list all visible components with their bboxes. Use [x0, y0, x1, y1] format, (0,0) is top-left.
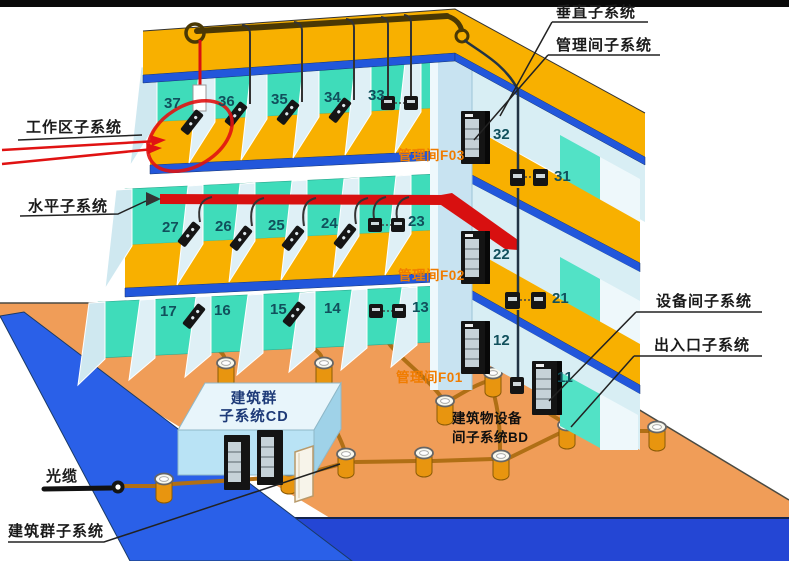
label-mgmt-f01: 管理间F01 [396, 369, 463, 385]
room-number: 37 [164, 95, 181, 112]
label-campus-subsystem: 建筑群子系统 [8, 522, 104, 540]
room-number: 26 [215, 218, 232, 235]
manhole [155, 474, 173, 504]
faceplate [193, 85, 206, 111]
label-optical-cable: 光缆 [45, 467, 78, 485]
label-work-area-subsystem: 工作区子系统 [26, 118, 122, 136]
room-number: 35 [271, 91, 288, 108]
manhole [415, 448, 433, 478]
label-horizontal-subsystem: 水平子系统 [28, 197, 108, 215]
room-number: 13 [412, 299, 429, 316]
room-number: 21 [552, 290, 569, 307]
label-cd-line2: 子系统CD [219, 407, 288, 425]
room-number: 17 [160, 303, 177, 320]
label-vertical-subsystem: 垂直子系统 [556, 3, 636, 21]
manhole [648, 422, 666, 452]
cd-rack [257, 430, 283, 485]
room-number: 27 [162, 219, 179, 236]
label-management-subsystem: 管理间子系统 [556, 36, 652, 54]
manhole [492, 451, 510, 481]
structured-cabling-diagram: 垂直子系统 管理间子系统 工作区子系统 水平子系统 设备间子系统 出入口子系统 … [0, 0, 789, 561]
room-number: 14 [324, 300, 341, 317]
room-number: 36 [218, 93, 235, 110]
rack-12 [461, 321, 490, 374]
label-entrance-subsystem: 出入口子系统 [654, 336, 750, 354]
manhole [337, 449, 355, 479]
room-number: 11 [557, 369, 573, 386]
room-number: 31 [554, 168, 571, 185]
room-number: 32 [493, 126, 510, 143]
room-number: 34 [324, 89, 341, 106]
label-bd-line1: 建筑物设备 [451, 410, 522, 426]
label-mgmt-f02: 管理间F02 [398, 267, 465, 283]
room-number: 22 [493, 246, 510, 263]
label-equipment-subsystem: 设备间子系统 [656, 292, 752, 310]
room-number: 16 [214, 302, 231, 319]
room-number: 33 [368, 87, 385, 104]
label-bd-line2: 间子系统BD [452, 429, 529, 445]
room-number: 23 [408, 213, 425, 230]
room-number: 24 [321, 215, 338, 232]
room-number: 15 [270, 301, 287, 318]
label-mgmt-f03: 管理间F03 [398, 147, 465, 163]
label-cd-line1: 建筑群 [231, 389, 278, 407]
room-number: 25 [268, 217, 285, 234]
top-black-bar [0, 0, 789, 7]
cd-rack [224, 435, 250, 490]
room-number: 12 [493, 332, 510, 349]
rack-22 [461, 231, 490, 284]
